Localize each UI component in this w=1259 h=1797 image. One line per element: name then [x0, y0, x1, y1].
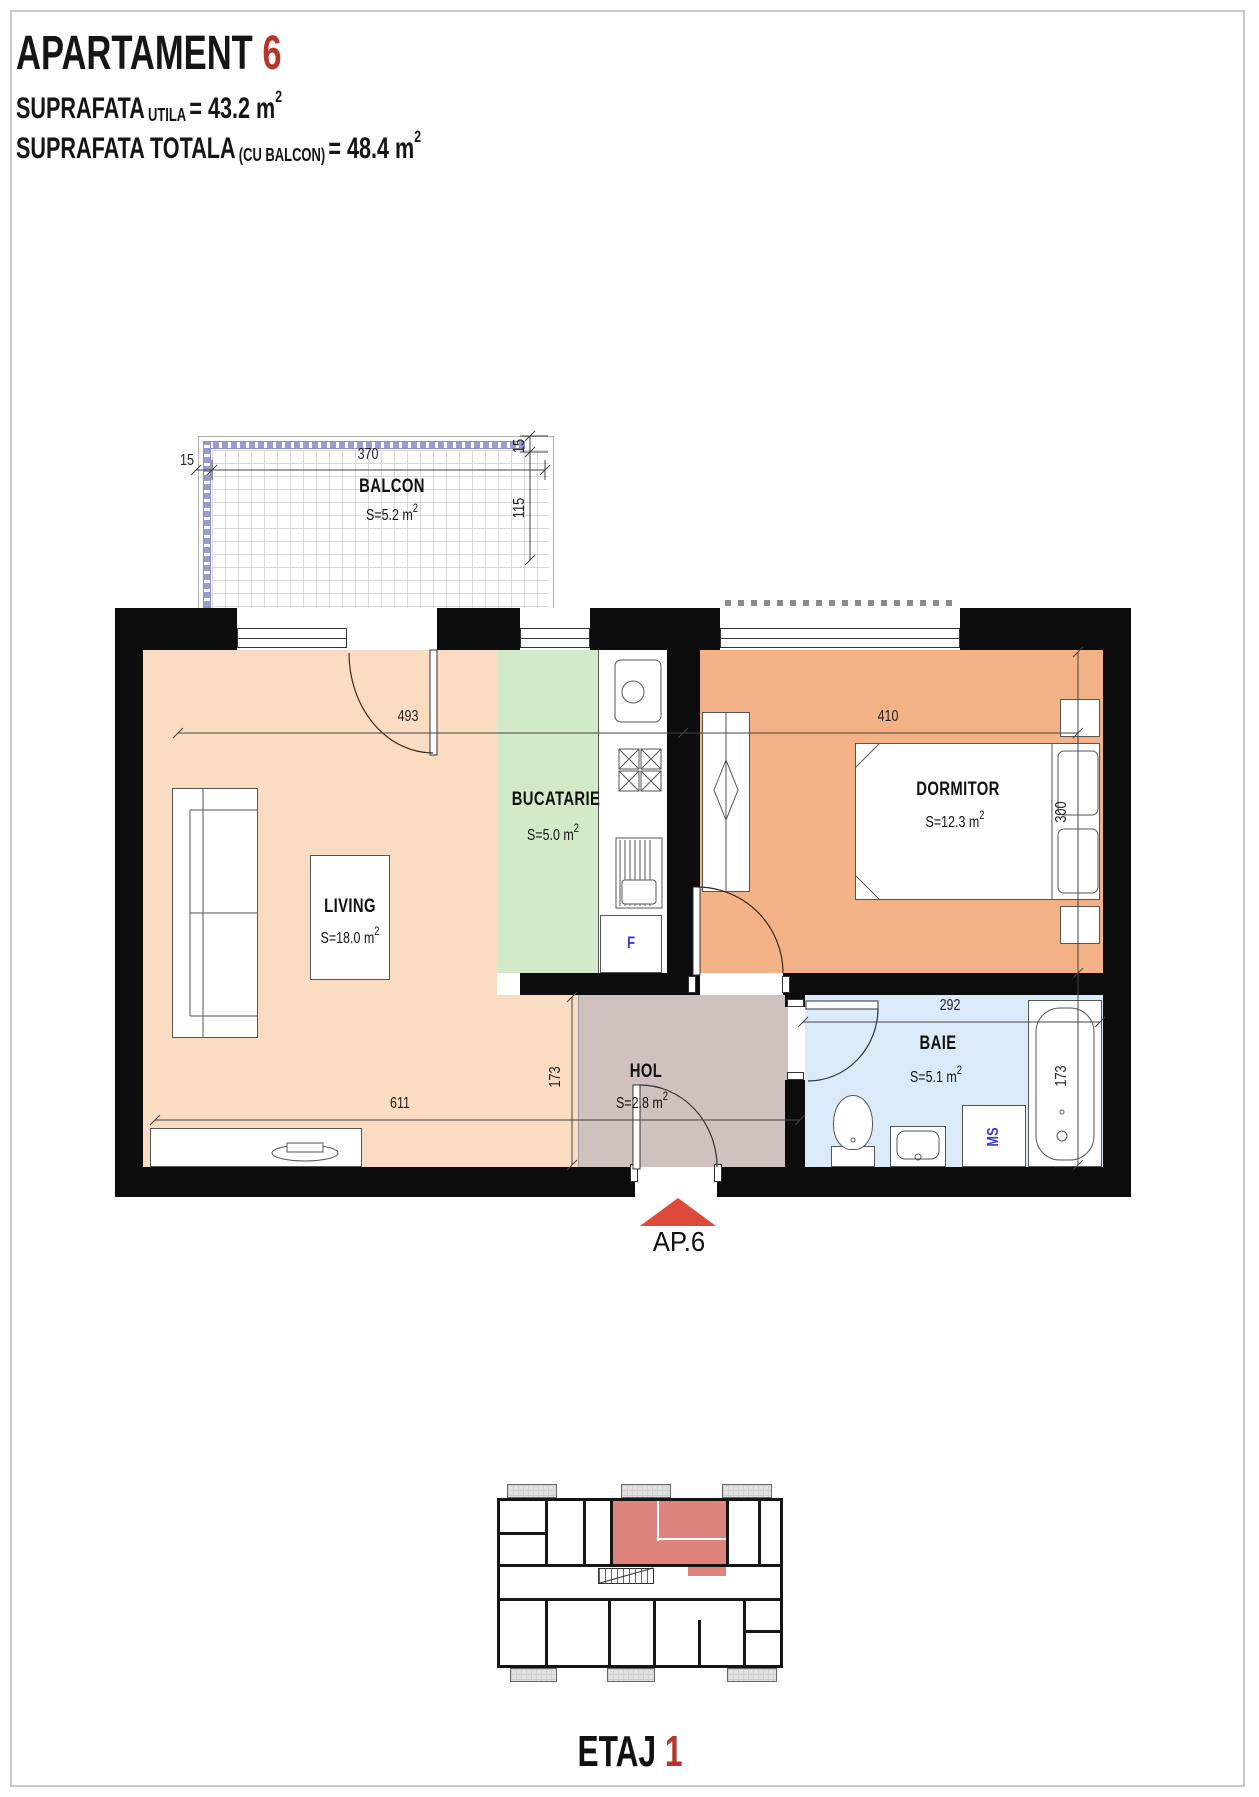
key-balcony — [607, 1668, 655, 1682]
key-unit-wall — [657, 1538, 726, 1540]
title-text: APARTAMENT — [16, 27, 253, 80]
nightstand-top — [1060, 699, 1100, 737]
suprafata-utila-sub: UTILA — [148, 105, 186, 125]
key-wall — [545, 1498, 548, 1567]
key-wall — [743, 1630, 783, 1633]
floor-label: ETAJ — [577, 1727, 656, 1776]
key-wall — [497, 1532, 545, 1535]
balcony-railing-left — [203, 441, 211, 608]
dormitor-area: S=12.3 m2 — [926, 810, 985, 832]
suprafata-utila-label: SUPRAFATA — [16, 92, 145, 125]
wall-bedroom-bath — [783, 973, 1103, 995]
floor-title: ETAJ 1 — [577, 1727, 682, 1777]
key-wall — [743, 1600, 746, 1668]
wall-kitchen-hall — [520, 973, 695, 995]
bath-door-jamb — [787, 999, 804, 1007]
key-wall — [758, 1498, 761, 1567]
page-title: APARTAMENT 6 — [16, 26, 282, 81]
wall — [590, 608, 720, 650]
suprafata-totala-sub: (CU BALCON) — [239, 145, 325, 165]
key-wall — [608, 1600, 611, 1668]
wall — [1103, 608, 1131, 1197]
bucatarie-area: S=5.0 m2 — [527, 823, 579, 845]
dim-living-width: 493 — [398, 708, 419, 726]
key-wall — [545, 1600, 548, 1668]
hall-floor — [578, 995, 788, 1167]
washing-machine-label: MS — [985, 1127, 1003, 1146]
key-wall — [610, 1500, 613, 1566]
key-balcony — [510, 1668, 557, 1682]
suprafata-totala-label: SUPRAFATA TOTALA — [16, 132, 236, 165]
balcony-door-opening — [347, 608, 437, 650]
floor-number: 1 — [665, 1727, 683, 1776]
kitchen-window — [520, 608, 590, 650]
wall-hall-bath-b — [785, 1080, 805, 1167]
key-balcony — [727, 1668, 777, 1682]
hol-area: S=2.8 m2 — [616, 1091, 668, 1113]
living-hall-boundary — [578, 995, 579, 1167]
key-wall — [653, 1600, 656, 1668]
dim-balcony-rail: 15 — [180, 452, 194, 470]
dim-baie-width: 292 — [940, 997, 961, 1015]
key-wall — [583, 1498, 586, 1567]
living-label: LIVING — [324, 896, 376, 918]
balcony-floor — [212, 450, 549, 608]
wall-kitchen-bedroom — [667, 650, 700, 995]
bucatarie-label: BUCATARIE — [512, 789, 601, 811]
key-stairs — [598, 1568, 654, 1584]
balcon-label: BALCON — [359, 476, 425, 498]
key-wall — [726, 1500, 729, 1566]
key-balcony — [722, 1484, 772, 1498]
dim-balcony-width: 370 — [358, 446, 379, 464]
entrance-label: AP.6 — [653, 1226, 706, 1258]
wall — [717, 1167, 1131, 1197]
dim-hol-depth: 173 — [547, 1066, 565, 1087]
baie-label: BAIE — [920, 1033, 957, 1055]
floorplan-page: APARTAMENT 6 SUPRAFATA UTILA = 43.2 m2 S… — [0, 0, 1259, 1797]
wardrobe — [702, 712, 750, 892]
bedroom-window-sill — [725, 600, 955, 606]
toilet-bowl — [833, 1095, 873, 1150]
entry-jamb — [630, 1164, 638, 1182]
suprafata-totala-line: SUPRAFATA TOTALA (CU BALCON) = 48.4 m2 — [16, 132, 421, 166]
wall — [115, 608, 143, 1197]
dim-balcony-side: 15 — [511, 439, 529, 453]
key-unit-wall — [657, 1501, 659, 1541]
bedroom-door-jamb — [688, 976, 696, 993]
hol-label: HOL — [630, 1061, 662, 1083]
nightstand-bottom — [1060, 906, 1100, 944]
entry-jamb — [714, 1164, 722, 1182]
key-wall — [497, 1564, 783, 1567]
dim-baie-depth: 173 — [1053, 1065, 1071, 1086]
title-number: 6 — [262, 27, 281, 80]
key-balcony — [507, 1484, 557, 1498]
suprafata-utila-value: = 43.2 m — [189, 92, 275, 125]
suprafata-totala-value: = 48.4 m — [328, 132, 414, 165]
bedroom-door-jamb — [782, 976, 790, 993]
sofa — [172, 788, 258, 1038]
key-wall — [497, 1598, 783, 1601]
living-window — [237, 608, 347, 650]
wall — [437, 608, 520, 650]
key-highlight-unit — [613, 1501, 726, 1564]
bedroom-window — [720, 608, 960, 650]
balcon-area: S=5.2 m2 — [366, 503, 418, 525]
dim-balcony-depth: 115 — [511, 498, 529, 518]
dim-living-total: 611 — [390, 1095, 410, 1113]
baie-area: S=5.1 m2 — [910, 1065, 962, 1087]
fridge-label: F — [627, 933, 635, 953]
dim-dormitor-width: 410 — [878, 708, 899, 726]
bath-door-jamb — [787, 1072, 804, 1080]
suprafata-utila-line: SUPRAFATA UTILA = 43.2 m2 — [16, 92, 282, 126]
bathroom-sink — [890, 1126, 946, 1167]
key-wall — [698, 1620, 701, 1668]
tv-cabinet — [150, 1128, 362, 1167]
wall — [115, 1167, 635, 1197]
entrance-arrow-icon — [640, 1198, 716, 1226]
dormitor-label: DORMITOR — [916, 779, 1000, 801]
key-balcony — [621, 1484, 671, 1498]
living-floor-nook — [497, 995, 578, 1167]
dim-dormitor-depth: 300 — [1053, 801, 1071, 822]
living-area: S=18.0 m2 — [321, 926, 380, 948]
kitchen-floor — [497, 650, 598, 973]
